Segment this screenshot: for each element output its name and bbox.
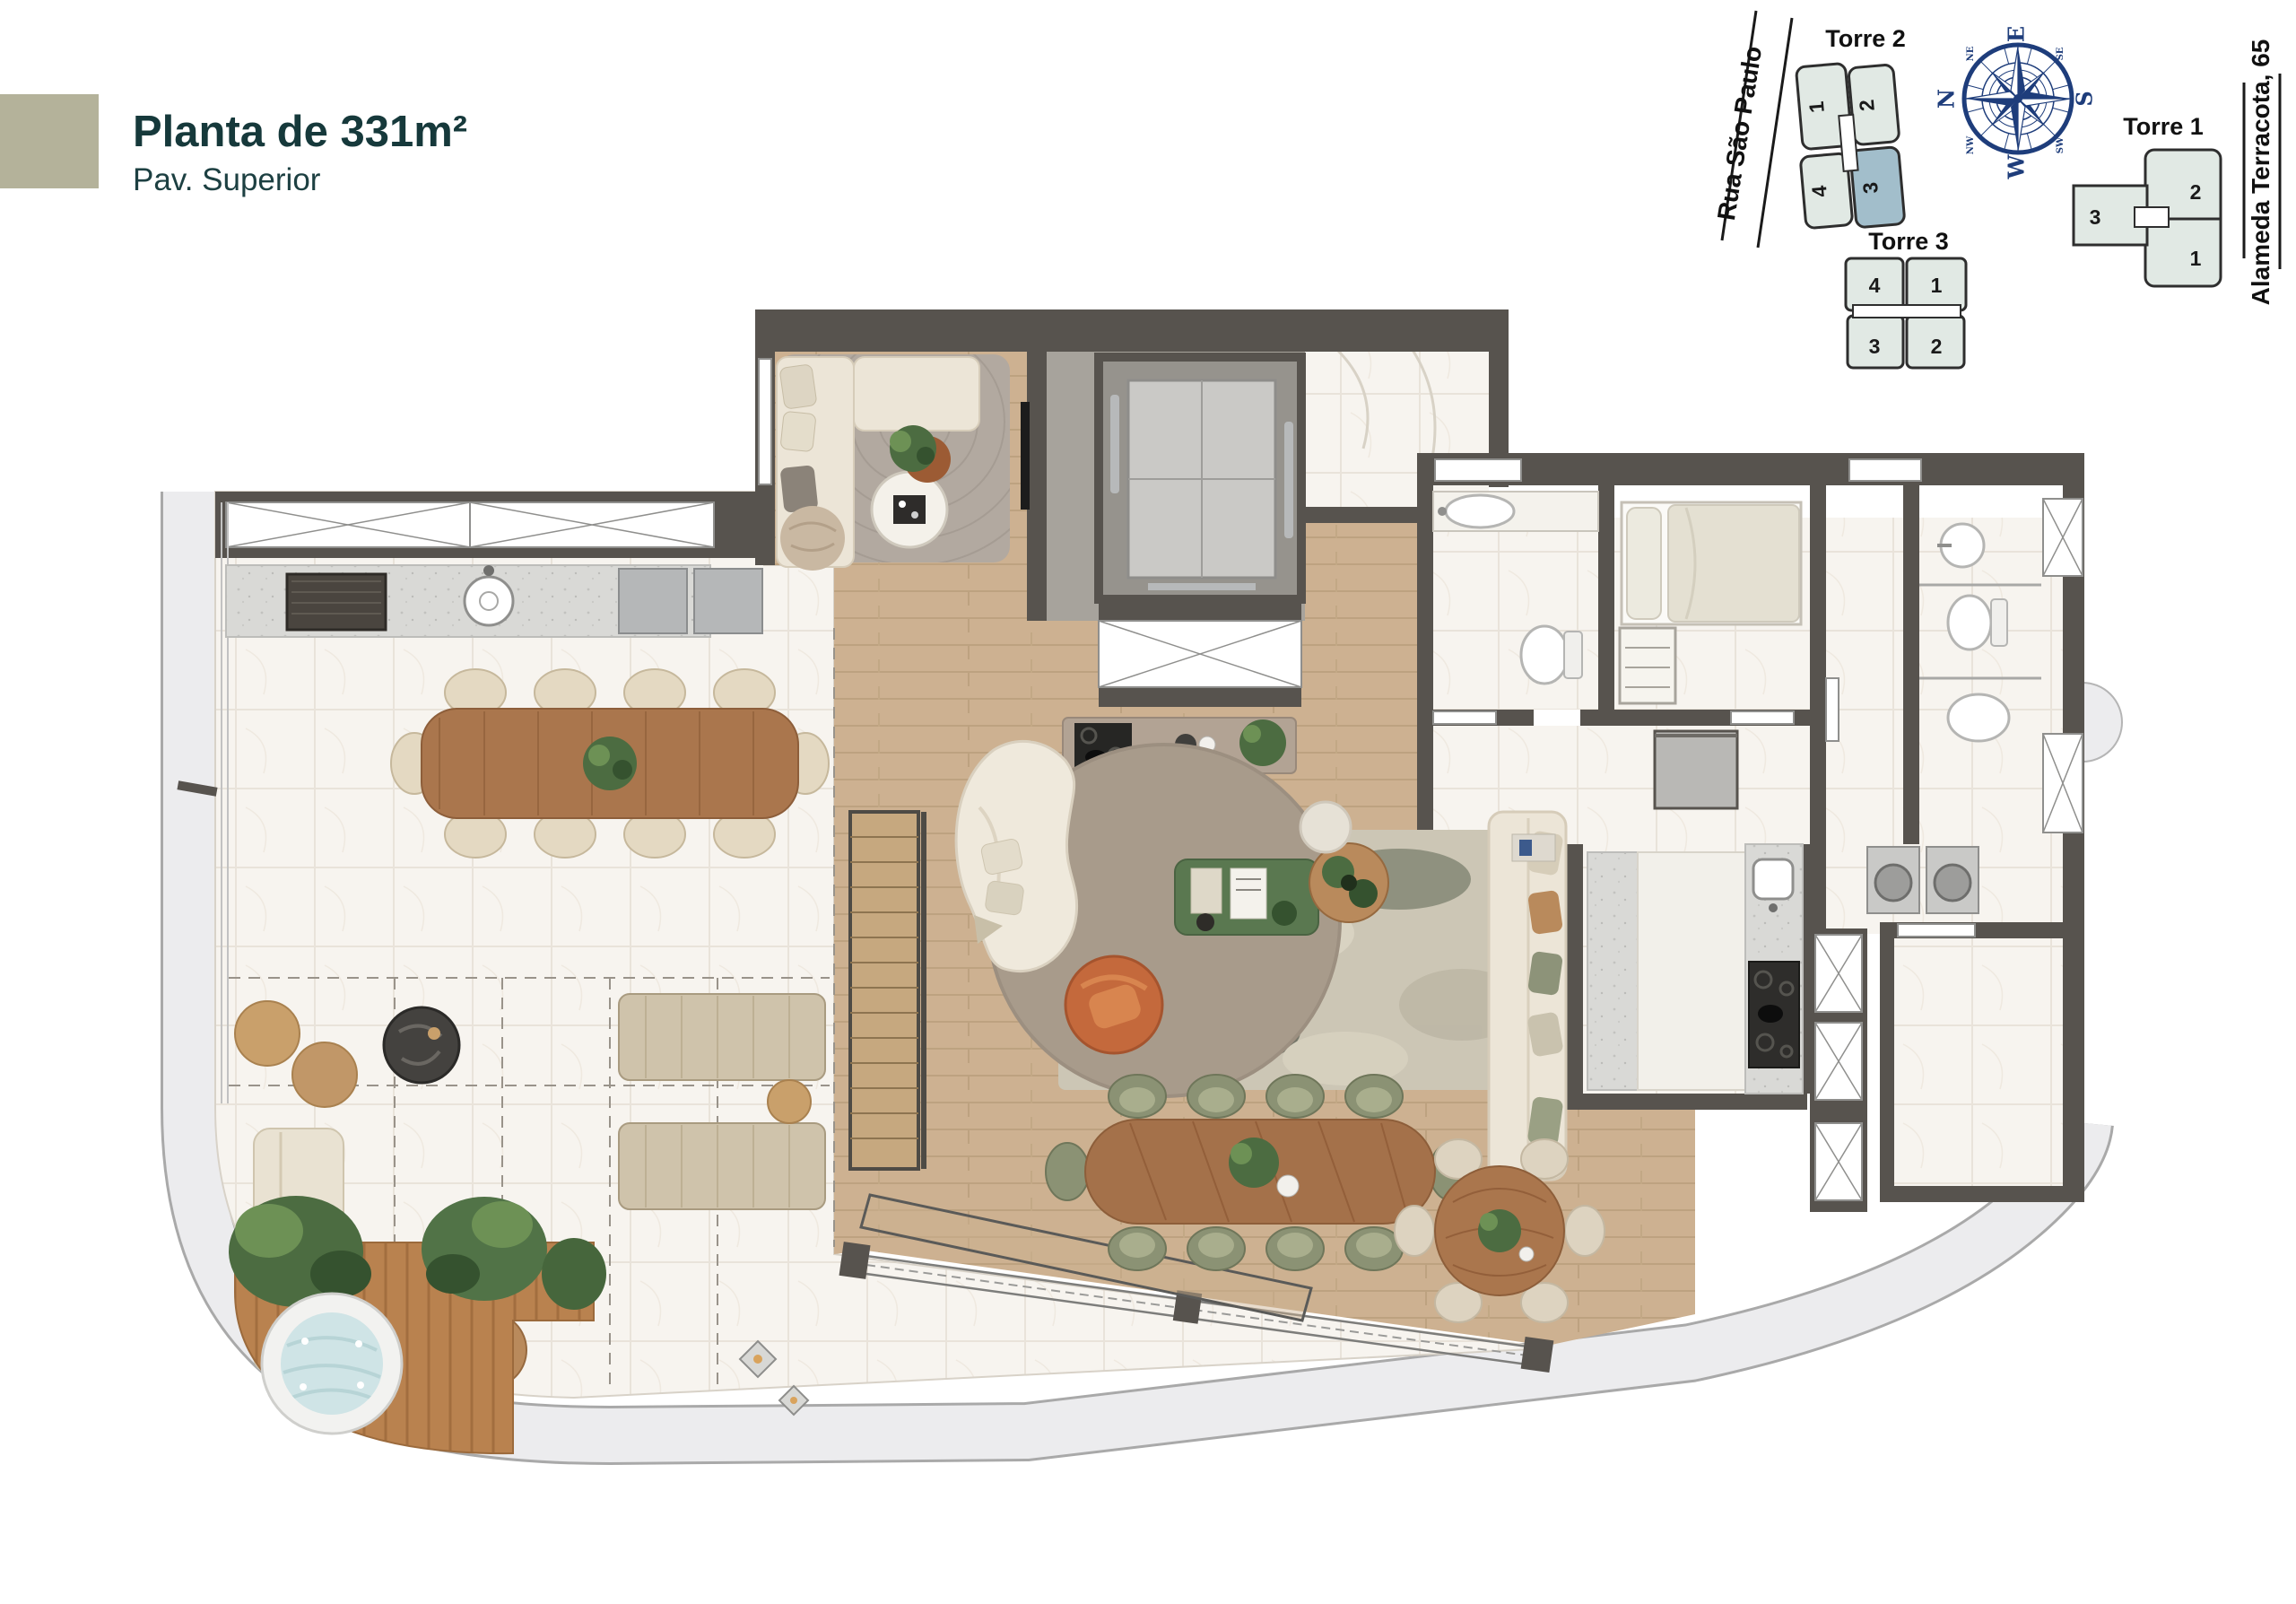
balcony-bump [2083, 683, 2122, 762]
torre-1-unit-2: 2 [2190, 180, 2202, 204]
pantry-door [1898, 924, 1975, 937]
tray [1191, 868, 1222, 913]
torre-2: Torre 2 1 2 4 3 [1789, 18, 1923, 232]
bath-b-floor [1919, 518, 2063, 844]
floor-plan-page: Planta de 331m² Pav. Superior [0, 0, 2296, 1604]
header: Planta de 331m² Pav. Superior [0, 94, 467, 197]
compass-west: W [2004, 153, 2030, 179]
compass-south: S [2072, 91, 2098, 106]
terrace-sink-icon [465, 577, 513, 625]
lounger-2 [619, 1123, 825, 1209]
laundry-cabinet [1655, 731, 1737, 808]
torre-3-unit-1: 1 [1931, 274, 1943, 297]
pouf-2 [292, 1042, 357, 1107]
elevator-void [1099, 621, 1301, 687]
floor-plan [177, 251, 2122, 1453]
bath-a-sink-icon [1446, 495, 1514, 527]
den-sofa-chaise [854, 357, 979, 431]
torre-2-label: Torre 2 [1825, 25, 1906, 52]
torre-3-unit-2: 2 [1931, 335, 1943, 358]
fire-pit-icon [384, 1007, 459, 1083]
den-throw-blanket [780, 506, 845, 571]
elevator-rail-right [1284, 422, 1293, 538]
torre-3-unit-4: 4 [1869, 274, 1881, 297]
bed-pillow [1627, 508, 1661, 619]
torre-3: Torre 3 4 1 3 2 [1846, 228, 1966, 368]
street-label-left: Rua São Paulo [1712, 44, 1767, 222]
wing-planter-2 [1849, 459, 1921, 481]
page-subtitle: Pav. Superior [133, 162, 321, 197]
jacuzzi-icon [262, 1294, 402, 1434]
den-pillow-3 [779, 465, 818, 513]
magazine [1231, 868, 1266, 919]
kitchen-sink-icon [1753, 859, 1793, 899]
plan-canvas: Planta de 331m² Pav. Superior [0, 0, 2296, 1604]
service-shafts [1815, 935, 1862, 1200]
elevator-rail-left [1110, 395, 1119, 493]
orange-armchair [1065, 956, 1162, 1053]
bedroom-door [1731, 711, 1794, 724]
street-rua-sao-paulo: Rua São Paulo [1712, 11, 1792, 248]
wardrobe-icon [1620, 628, 1675, 703]
tv-icon [1021, 402, 1030, 510]
bath-b-vanity-icon [1948, 694, 2009, 741]
bath-a-toilet-icon [1521, 626, 1582, 684]
lounger-table [768, 1080, 811, 1123]
bath-b-toilet-icon [1948, 596, 2007, 649]
kitchen-island [1638, 852, 1745, 1090]
pouf-1 [235, 1001, 300, 1066]
sofa-pillow-2 [985, 880, 1024, 915]
long-sofa [1489, 812, 1566, 1180]
site-plan: Rua São Paulo Torre 2 1 2 4 3 [1712, 11, 2280, 368]
table-plant-small [1272, 901, 1297, 926]
compass-ne: NE [1966, 46, 1976, 61]
torre-2-unit-4: 4 [1807, 185, 1831, 198]
torre-3-unit-3: 3 [1869, 335, 1881, 358]
bath-a-floor [1433, 518, 1598, 710]
wing-planter-1 [1435, 459, 1521, 481]
pantry-floor [1894, 938, 2063, 1186]
street-label-right: Alameda Terracota, 65 [2247, 39, 2274, 306]
stool-2 [694, 569, 762, 633]
den-tray [893, 495, 926, 524]
compass-sw: SW [2056, 136, 2066, 153]
compass-se: SE [2056, 47, 2066, 60]
terrace-gourmet-counter [226, 565, 762, 637]
den-west-window [759, 359, 771, 484]
bath-a-door [1433, 711, 1496, 724]
torre-3-label: Torre 3 [1868, 228, 1949, 255]
compass-east: E [2004, 26, 2030, 42]
street-alameda-terracota: Alameda Terracota, 65 [2244, 39, 2280, 306]
torre-1-label: Torre 1 [2123, 113, 2204, 140]
bed-duvet [1668, 505, 1799, 622]
den-pillow-1 [779, 364, 817, 410]
torre-1: Torre 1 2 3 1 [2074, 113, 2221, 286]
corridor-door [1826, 678, 1839, 741]
sofa-console [1512, 834, 1555, 861]
compass-rose-icon: E S W N NE SE SW NW [1934, 26, 2098, 180]
compass-nw: NW [1966, 135, 1976, 154]
stool-1 [619, 569, 687, 633]
elevator-core [1099, 357, 1301, 599]
torre-1-unit-1: 1 [2190, 247, 2202, 270]
lounger-1 [619, 994, 825, 1080]
elevator-door [1148, 583, 1256, 590]
compass-north: N [1934, 89, 1960, 109]
torre-2-unit-3: 3 [1858, 181, 1883, 195]
accent-square [0, 94, 99, 188]
cooktop-icon [1749, 962, 1799, 1068]
kitchen [1587, 844, 1803, 1094]
torre-2-unit-1: 1 [1805, 100, 1829, 114]
page-title: Planta de 331m² [133, 108, 467, 156]
terrace-planter-box [226, 502, 714, 547]
den-pillow-2 [780, 411, 816, 452]
island-plant-icon [1239, 719, 1286, 766]
white-side-table [1300, 802, 1351, 852]
kitchen-counter-left [1587, 852, 1638, 1090]
torre-1-unit-3: 3 [2090, 205, 2101, 229]
torre-2-unit-2: 2 [1855, 99, 1879, 112]
